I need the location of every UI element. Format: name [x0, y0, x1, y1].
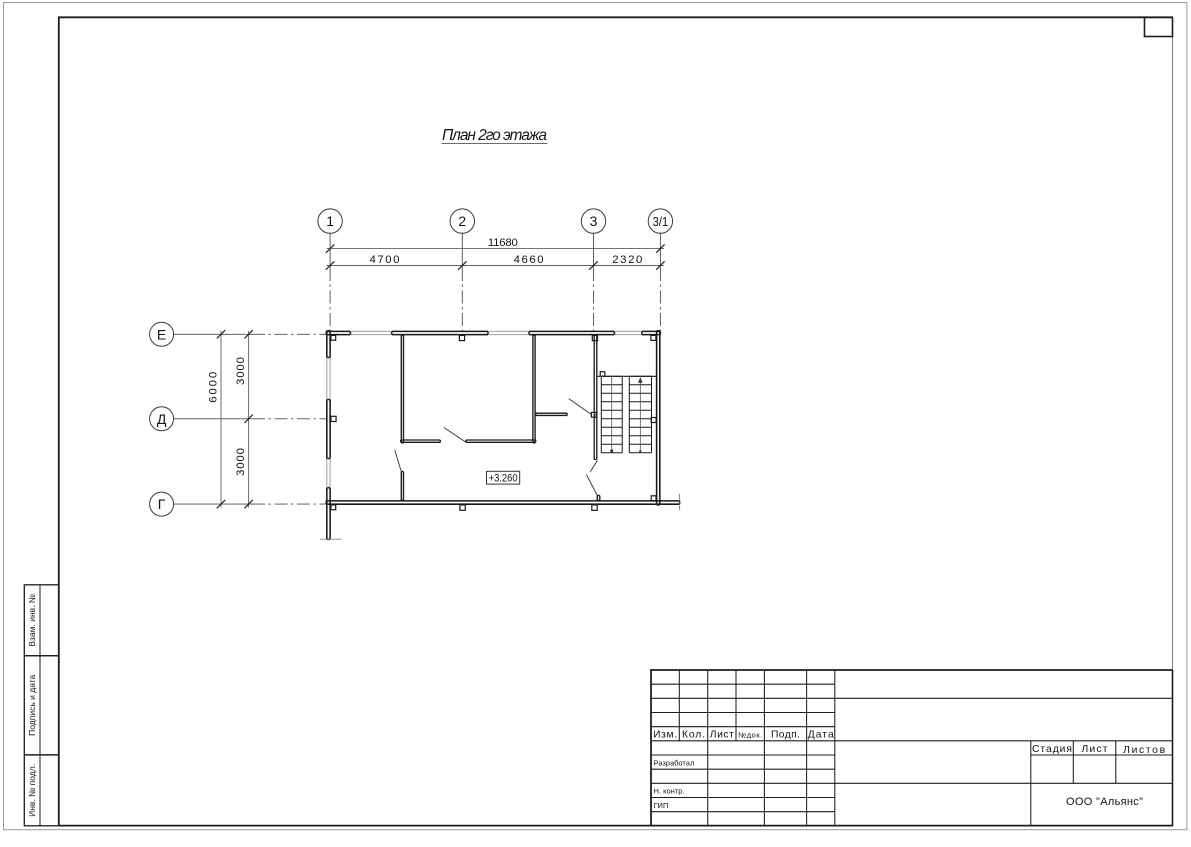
svg-text:Кол.: Кол. [682, 730, 705, 741]
svg-text:3000: 3000 [235, 448, 247, 476]
svg-text:Подп.: Подп. [771, 730, 800, 741]
svg-text:Д: Д [157, 411, 167, 427]
svg-text:Подпись и дата: Подпись и дата [27, 674, 37, 735]
svg-text:Е: Е [157, 326, 166, 342]
svg-text:Дата: Дата [808, 730, 834, 741]
svg-text:+3.260: +3.260 [489, 473, 518, 485]
svg-text:Стадия: Стадия [1032, 744, 1072, 755]
svg-text:План 2го этажа: План 2го этажа [442, 127, 547, 144]
svg-text:3/1: 3/1 [653, 214, 669, 229]
svg-text:№док.: №док. [738, 731, 762, 740]
svg-text:Инв. № подл.: Инв. № подл. [27, 764, 37, 817]
svg-text:Взам. инв. №: Взам. инв. № [27, 594, 37, 647]
svg-text:4700: 4700 [370, 254, 400, 266]
svg-text:2320: 2320 [612, 254, 642, 266]
svg-text:1: 1 [326, 213, 334, 229]
svg-text:Н. контр.: Н. контр. [654, 787, 685, 796]
svg-text:Г: Г [158, 496, 166, 512]
svg-text:ООО "Альянс": ООО "Альянс" [1066, 796, 1143, 808]
svg-text:Разработал: Разработал [654, 758, 695, 767]
svg-text:Лист: Лист [1082, 744, 1108, 755]
svg-text:2: 2 [458, 213, 466, 229]
svg-text:3000: 3000 [235, 357, 247, 385]
svg-text:6000: 6000 [207, 372, 219, 403]
svg-text:3: 3 [590, 213, 598, 229]
svg-text:11680: 11680 [488, 237, 518, 249]
svg-text:Лист: Лист [710, 730, 734, 741]
svg-text:4660: 4660 [514, 254, 544, 266]
svg-text:Изм.: Изм. [653, 730, 677, 741]
svg-text:ГИП: ГИП [654, 801, 669, 810]
